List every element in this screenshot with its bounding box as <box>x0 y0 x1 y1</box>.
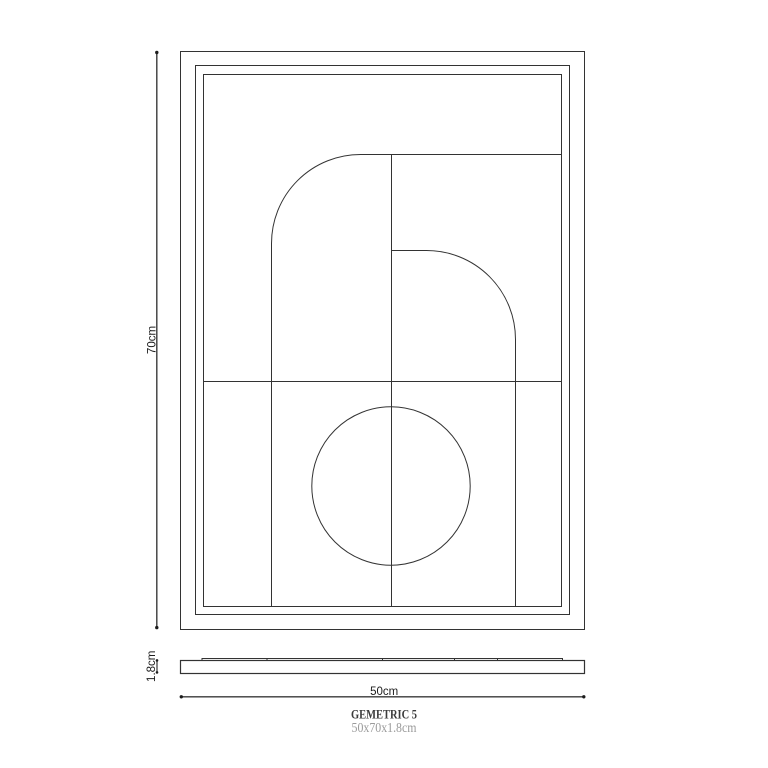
svg-text:50x70x1.8cm: 50x70x1.8cm <box>352 721 417 736</box>
svg-text:GEMETRIC 5: GEMETRIC 5 <box>351 706 417 721</box>
svg-text:50cm: 50cm <box>370 686 398 698</box>
svg-text:70cm: 70cm <box>146 326 158 354</box>
svg-text:1.8cm: 1.8cm <box>146 651 158 682</box>
